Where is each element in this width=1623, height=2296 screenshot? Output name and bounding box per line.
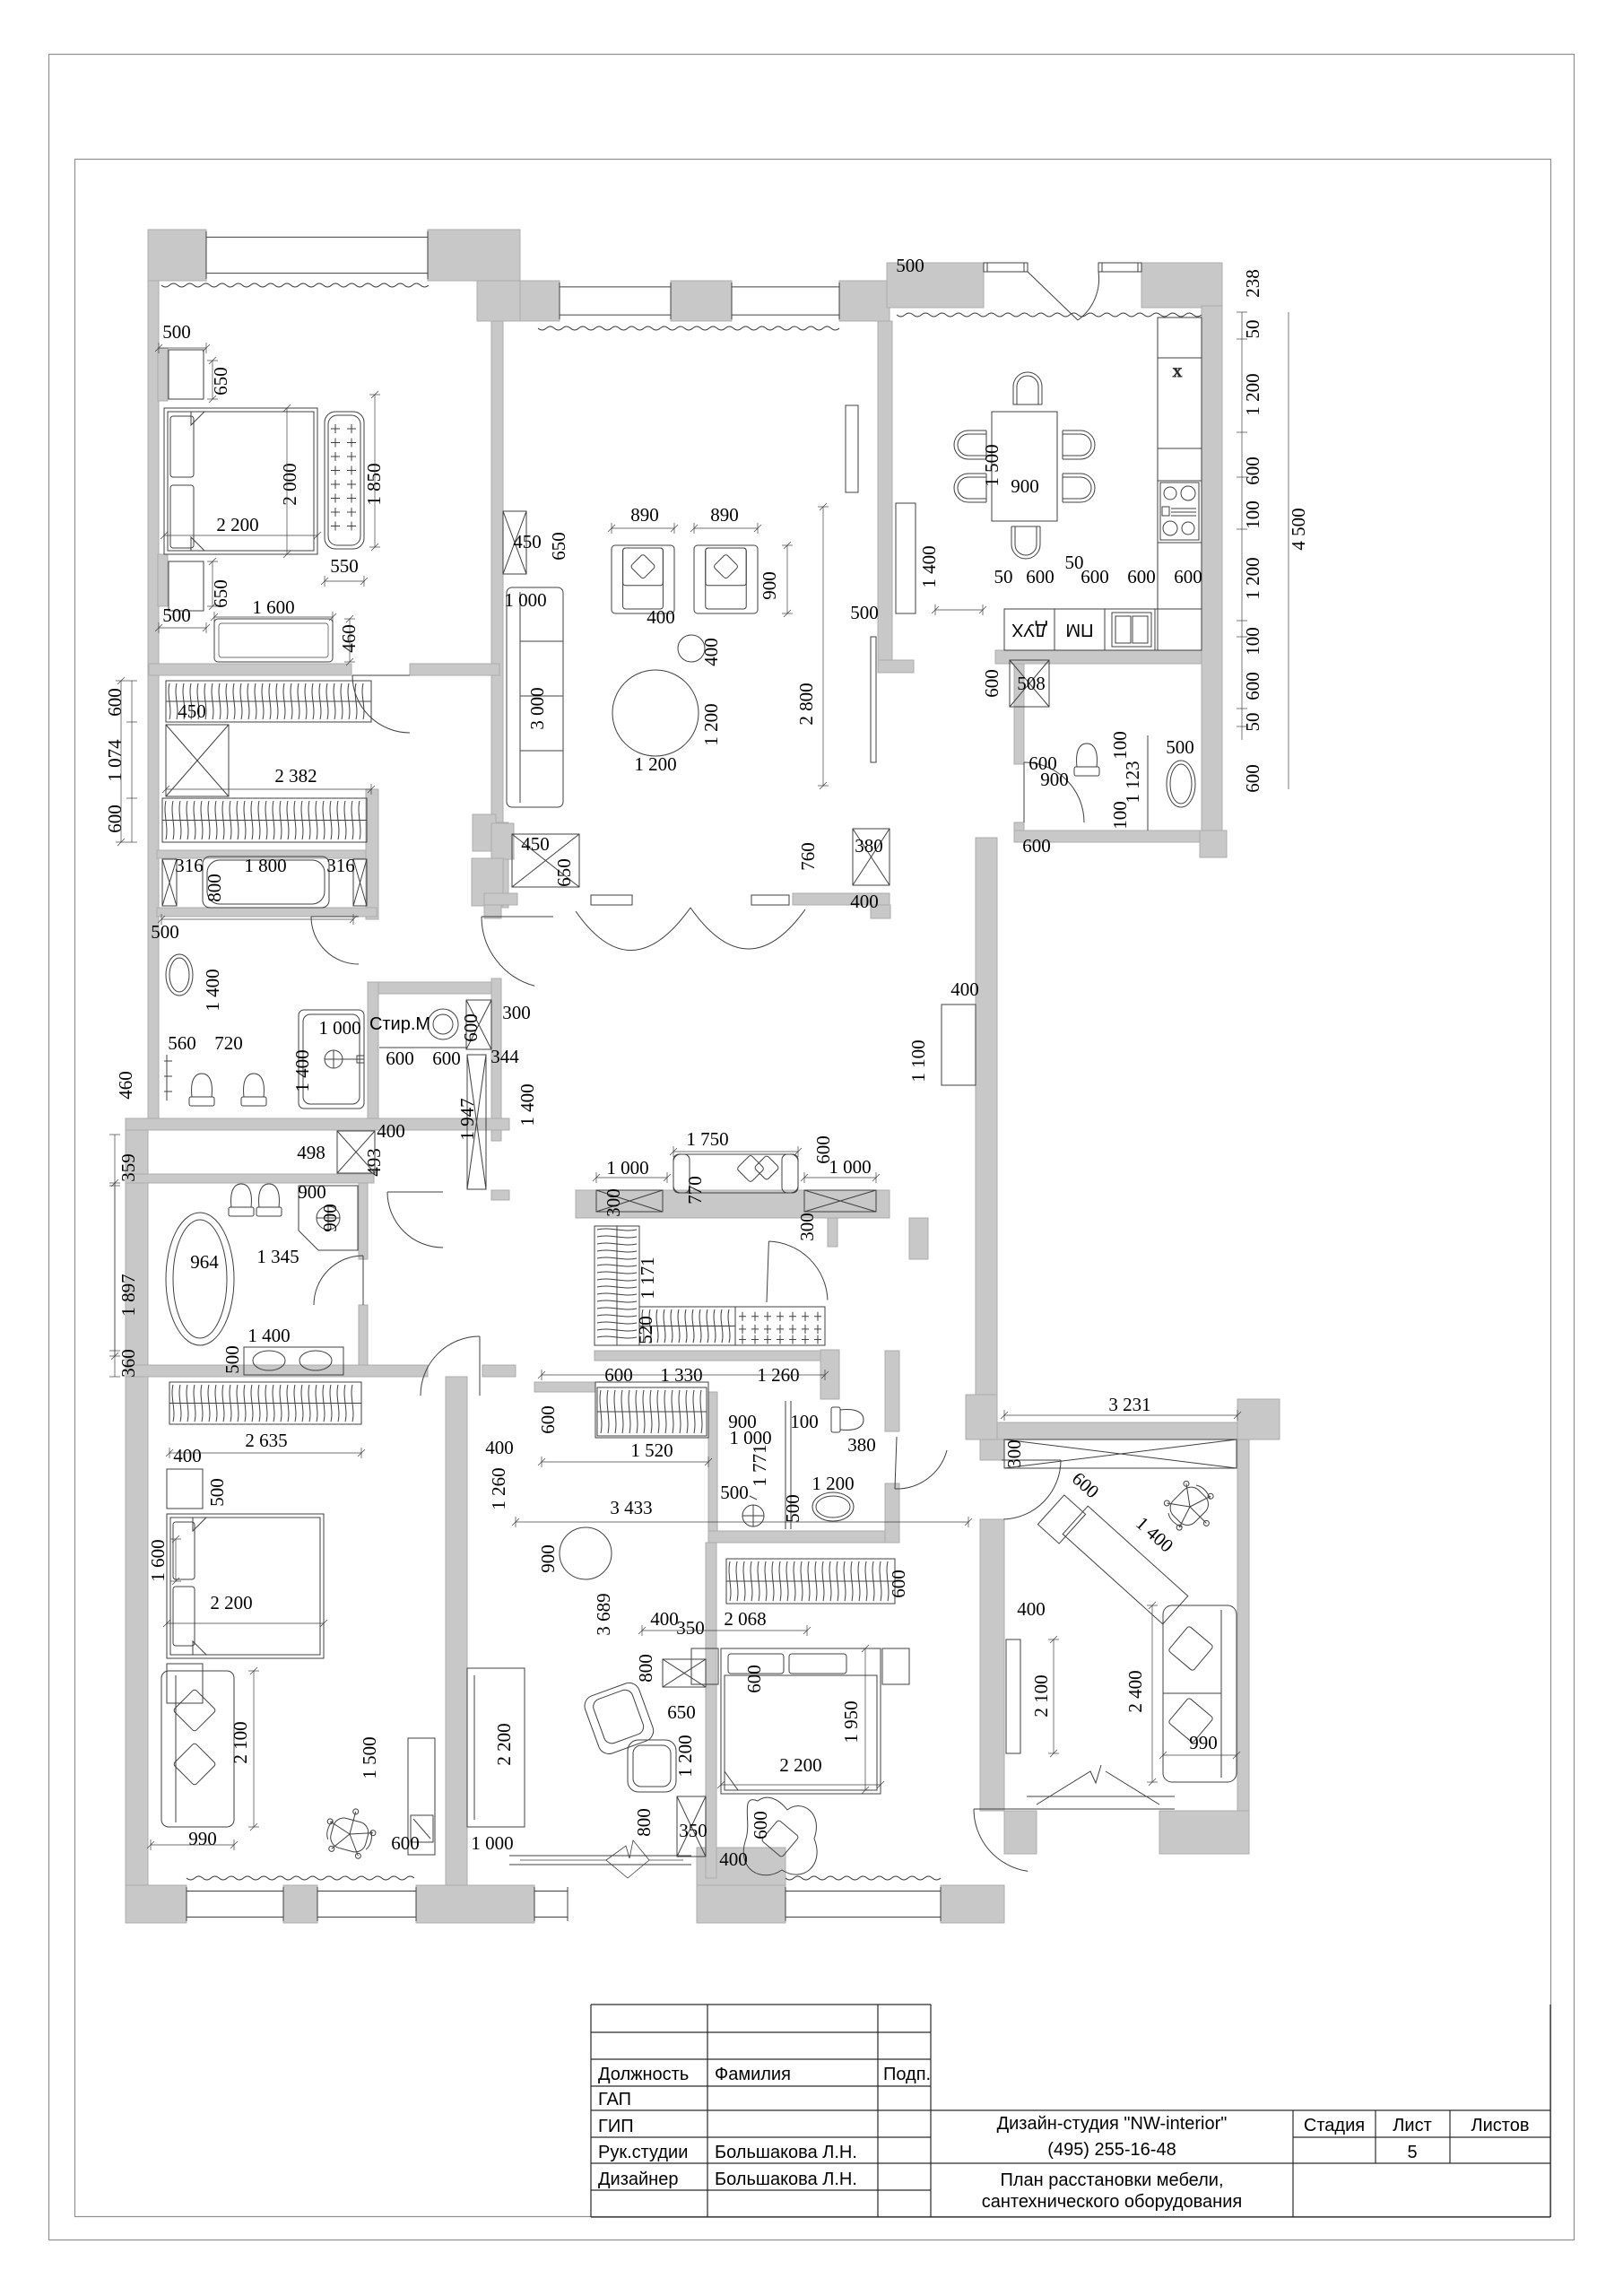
- svg-text:500: 500: [720, 1482, 749, 1503]
- svg-text:2 068: 2 068: [724, 1608, 766, 1630]
- svg-text:1 200: 1 200: [700, 703, 722, 745]
- svg-text:1 000: 1 000: [318, 1017, 360, 1039]
- svg-text:1 000: 1 000: [504, 589, 546, 611]
- svg-text:300: 300: [502, 1002, 531, 1023]
- svg-text:800: 800: [635, 1654, 656, 1683]
- svg-text:760: 760: [797, 842, 819, 871]
- svg-text:2 100: 2 100: [1030, 1674, 1052, 1717]
- svg-text:359: 359: [117, 1153, 139, 1182]
- svg-text:600: 600: [1242, 672, 1263, 700]
- svg-text:2 635: 2 635: [245, 1430, 287, 1451]
- svg-text:100: 100: [1242, 627, 1263, 656]
- svg-text:х: х: [1173, 360, 1183, 381]
- svg-text:(495) 255-16-48: (495) 255-16-48: [1047, 2140, 1176, 2160]
- svg-text:600: 600: [1026, 566, 1055, 587]
- svg-text:900: 900: [759, 571, 780, 600]
- svg-text:316: 316: [326, 855, 355, 876]
- svg-text:1 600: 1 600: [252, 596, 294, 618]
- svg-text:50: 50: [1242, 713, 1263, 732]
- svg-text:300: 300: [796, 1213, 818, 1241]
- svg-text:3 433: 3 433: [610, 1497, 652, 1518]
- svg-text:650: 650: [548, 532, 569, 561]
- svg-text:100: 100: [1242, 500, 1263, 529]
- svg-text:1 850: 1 850: [363, 463, 385, 505]
- svg-text:500: 500: [1166, 736, 1194, 758]
- svg-text:650: 650: [210, 367, 231, 396]
- svg-text:3 689: 3 689: [593, 1593, 614, 1635]
- svg-text:500: 500: [206, 1478, 228, 1507]
- svg-text:2 382: 2 382: [274, 765, 317, 787]
- svg-text:3 231: 3 231: [1108, 1394, 1150, 1415]
- svg-text:238: 238: [1242, 269, 1263, 298]
- svg-text:1 400: 1 400: [202, 969, 223, 1011]
- svg-text:360: 360: [117, 1349, 139, 1378]
- svg-text:Лист: Лист: [1393, 2116, 1431, 2135]
- svg-text:ГИП: ГИП: [598, 2117, 634, 2136]
- svg-text:500: 500: [162, 321, 191, 343]
- svg-text:1 750: 1 750: [686, 1128, 728, 1150]
- svg-text:400: 400: [650, 1608, 679, 1630]
- svg-text:600: 600: [1127, 566, 1156, 587]
- svg-text:50: 50: [994, 566, 1013, 587]
- svg-text:1 123: 1 123: [1122, 761, 1143, 803]
- svg-text:Дизайн-студия "NW-interior": Дизайн-студия "NW-interior": [997, 2114, 1228, 2134]
- svg-text:1 500: 1 500: [359, 1736, 380, 1779]
- svg-text:890: 890: [630, 504, 659, 526]
- svg-text:400: 400: [1017, 1598, 1046, 1620]
- svg-text:1 897: 1 897: [117, 1274, 139, 1316]
- svg-text:990: 990: [1189, 1732, 1218, 1753]
- svg-text:500: 500: [221, 1345, 243, 1374]
- svg-text:100: 100: [1109, 731, 1131, 760]
- svg-text:498: 498: [297, 1142, 325, 1163]
- svg-text:900: 900: [1011, 475, 1039, 497]
- svg-text:500: 500: [850, 602, 879, 623]
- svg-text:1 171: 1 171: [637, 1257, 658, 1299]
- svg-text:900: 900: [1040, 769, 1069, 790]
- svg-text:Стадия: Стадия: [1304, 2116, 1365, 2135]
- svg-text:400: 400: [719, 1848, 748, 1870]
- svg-text:1 400: 1 400: [918, 545, 940, 587]
- svg-text:Должность: Должность: [598, 2065, 689, 2084]
- svg-text:600: 600: [386, 1048, 414, 1069]
- svg-text:560: 560: [168, 1032, 196, 1054]
- svg-text:1 950: 1 950: [840, 1700, 862, 1743]
- svg-text:350: 350: [676, 1617, 705, 1639]
- svg-text:1 400: 1 400: [516, 1083, 538, 1126]
- svg-text:600: 600: [432, 1048, 461, 1069]
- svg-text:650: 650: [667, 1701, 696, 1723]
- svg-text:2 000: 2 000: [279, 463, 300, 505]
- svg-text:ДУХ: ДУХ: [1011, 620, 1047, 639]
- svg-text:2 400: 2 400: [1124, 1670, 1146, 1712]
- svg-text:450: 450: [521, 833, 550, 855]
- svg-text:4 500: 4 500: [1288, 508, 1309, 550]
- svg-text:600: 600: [743, 1665, 765, 1693]
- svg-text:600: 600: [1081, 566, 1109, 587]
- svg-text:350: 350: [679, 1820, 707, 1841]
- svg-text:600: 600: [750, 1811, 771, 1839]
- svg-text:400: 400: [700, 638, 722, 666]
- svg-text:1 200: 1 200: [811, 1473, 854, 1494]
- svg-text:1 400: 1 400: [247, 1325, 290, 1346]
- svg-text:ГАП: ГАП: [598, 2090, 631, 2109]
- svg-text:900: 900: [319, 1204, 341, 1232]
- svg-text:344: 344: [490, 1046, 519, 1067]
- svg-text:1 500: 1 500: [981, 444, 1002, 486]
- svg-text:сантехнического оборудования: сантехнического оборудования: [982, 2192, 1242, 2212]
- svg-text:1 771: 1 771: [749, 1444, 770, 1486]
- svg-text:800: 800: [204, 874, 225, 902]
- svg-text:1 800: 1 800: [244, 855, 286, 876]
- svg-text:2 200: 2 200: [216, 514, 258, 535]
- svg-text:600: 600: [981, 669, 1002, 698]
- svg-text:1 000: 1 000: [606, 1157, 648, 1178]
- svg-text:600: 600: [1022, 835, 1051, 857]
- svg-text:400: 400: [485, 1437, 514, 1458]
- svg-text:Большакова Л.Н.: Большакова Л.Н.: [715, 2143, 857, 2162]
- svg-text:600: 600: [104, 804, 126, 833]
- svg-text:План расстановки мебели,: План расстановки мебели,: [1000, 2170, 1223, 2190]
- svg-text:1 200: 1 200: [1242, 373, 1263, 415]
- svg-text:Дизайнер: Дизайнер: [598, 2170, 678, 2189]
- svg-text:100: 100: [790, 1411, 819, 1432]
- svg-text:Стир.М: Стир.М: [369, 1014, 430, 1034]
- svg-text:1 600: 1 600: [147, 1539, 169, 1581]
- svg-text:460: 460: [338, 624, 360, 653]
- svg-text:800: 800: [633, 1808, 655, 1837]
- svg-text:500: 500: [151, 921, 179, 943]
- svg-text:1 074: 1 074: [104, 739, 126, 782]
- svg-text:1 520: 1 520: [630, 1439, 673, 1461]
- svg-text:Листов: Листов: [1471, 2116, 1530, 2135]
- svg-text:1 345: 1 345: [256, 1246, 299, 1267]
- svg-text:520: 520: [635, 1316, 656, 1344]
- svg-text:600: 600: [1174, 566, 1202, 587]
- svg-text:890: 890: [710, 504, 739, 526]
- svg-text:2 200: 2 200: [493, 1723, 515, 1765]
- svg-text:508: 508: [1017, 673, 1046, 694]
- svg-text:550: 550: [330, 555, 359, 577]
- svg-text:600: 600: [460, 1013, 482, 1042]
- svg-text:400: 400: [950, 978, 979, 1000]
- svg-text:900: 900: [537, 1544, 559, 1573]
- svg-text:600: 600: [812, 1135, 834, 1164]
- svg-text:1 000: 1 000: [829, 1156, 871, 1178]
- svg-text:600: 600: [537, 1405, 559, 1434]
- svg-text:1 200: 1 200: [1242, 557, 1263, 599]
- svg-text:460: 460: [115, 1071, 136, 1100]
- svg-text:720: 720: [214, 1032, 243, 1054]
- svg-text:50: 50: [1242, 320, 1263, 339]
- svg-text:1 947: 1 947: [456, 1098, 478, 1140]
- svg-text:3 000: 3 000: [526, 687, 548, 729]
- svg-text:500: 500: [896, 255, 924, 276]
- svg-text:380: 380: [855, 835, 883, 857]
- svg-text:600: 600: [1242, 764, 1263, 793]
- svg-text:600: 600: [888, 1570, 909, 1598]
- svg-text:400: 400: [647, 606, 675, 628]
- svg-text:1 400: 1 400: [291, 1049, 313, 1091]
- svg-text:316: 316: [175, 855, 204, 876]
- svg-text:Рук.студии: Рук.студии: [598, 2143, 688, 2162]
- svg-text:2 200: 2 200: [210, 1592, 252, 1613]
- svg-text:300: 300: [1003, 1439, 1025, 1468]
- svg-text:600: 600: [391, 1832, 420, 1854]
- svg-text:1 000: 1 000: [471, 1832, 513, 1854]
- svg-text:450: 450: [178, 700, 206, 722]
- svg-text:400: 400: [173, 1445, 202, 1466]
- svg-text:Фамилия: Фамилия: [715, 2065, 791, 2084]
- svg-text:500: 500: [782, 1494, 803, 1523]
- svg-text:400: 400: [850, 891, 879, 912]
- svg-text:450: 450: [513, 531, 542, 552]
- svg-text:1 200: 1 200: [634, 753, 676, 775]
- svg-text:1 200: 1 200: [674, 1735, 696, 1777]
- svg-text:5: 5: [1407, 2143, 1417, 2162]
- svg-text:2 100: 2 100: [230, 1721, 251, 1763]
- svg-text:1 260: 1 260: [488, 1467, 509, 1509]
- svg-text:600: 600: [1242, 457, 1263, 485]
- svg-text:ПМ: ПМ: [1065, 620, 1093, 639]
- svg-text:400: 400: [377, 1120, 405, 1142]
- svg-text:Большакова Л.Н.: Большакова Л.Н.: [715, 2170, 857, 2189]
- svg-text:2 200: 2 200: [779, 1754, 821, 1776]
- svg-text:650: 650: [210, 579, 231, 608]
- svg-text:650: 650: [553, 858, 575, 887]
- svg-text:380: 380: [847, 1434, 876, 1456]
- svg-text:2 800: 2 800: [795, 683, 817, 725]
- svg-text:Подп.: Подп.: [883, 2065, 931, 2084]
- svg-text:900: 900: [298, 1181, 326, 1203]
- svg-text:990: 990: [188, 1828, 217, 1849]
- svg-text:100: 100: [1109, 801, 1131, 830]
- svg-text:500: 500: [162, 604, 191, 626]
- svg-text:300: 300: [603, 1188, 624, 1217]
- svg-text:600: 600: [104, 688, 126, 717]
- svg-text:964: 964: [190, 1251, 219, 1273]
- svg-text:770: 770: [684, 1176, 706, 1205]
- svg-text:1 100: 1 100: [907, 1039, 929, 1082]
